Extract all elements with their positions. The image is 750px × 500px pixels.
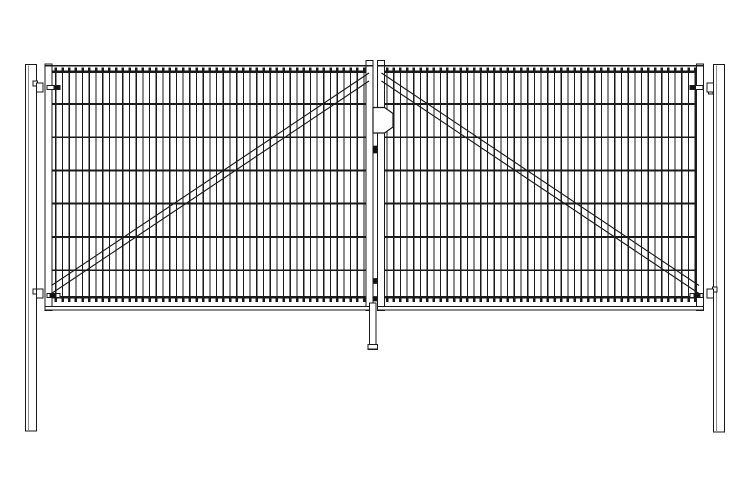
hinge-top-right-pin [690, 86, 696, 90]
right-post-body [714, 65, 725, 433]
drop-rod-foot [368, 345, 378, 350]
latch-bolt-2 [373, 279, 377, 284]
hinge-top-left-bracket [37, 83, 44, 92]
hinge-bottom-left-bracket [37, 289, 44, 298]
left-leaf-lock-stile [366, 61, 373, 311]
latch-bolt-3 [373, 297, 377, 302]
left-leaf-hinge-stile [45, 64, 52, 311]
drawing-canvas [0, 0, 750, 500]
gate-technical-drawing [0, 0, 750, 500]
hinge-top-right-bracket [707, 83, 714, 92]
hinge-bottom-right-bracket [707, 289, 714, 298]
drop-rod-assembly [368, 303, 378, 349]
right-leaf-hinge-stile [697, 64, 704, 311]
left-post-body [26, 65, 37, 432]
drawing-background [0, 0, 750, 500]
drop-rod [370, 303, 377, 345]
hinge-bottom-left-pin [50, 294, 56, 298]
right-leaf-bottom-rail [378, 307, 704, 311]
left-leaf-bottom-rail [45, 307, 374, 311]
hinge-bottom-right-pin [694, 294, 700, 298]
left-ground-post [26, 65, 37, 432]
right-ground-post [714, 65, 725, 433]
latch-plate [373, 108, 393, 134]
hinge-top-left-pin [54, 86, 60, 90]
latch-bolt-1 [373, 146, 377, 153]
right-leaf-lock-stile [378, 61, 385, 311]
